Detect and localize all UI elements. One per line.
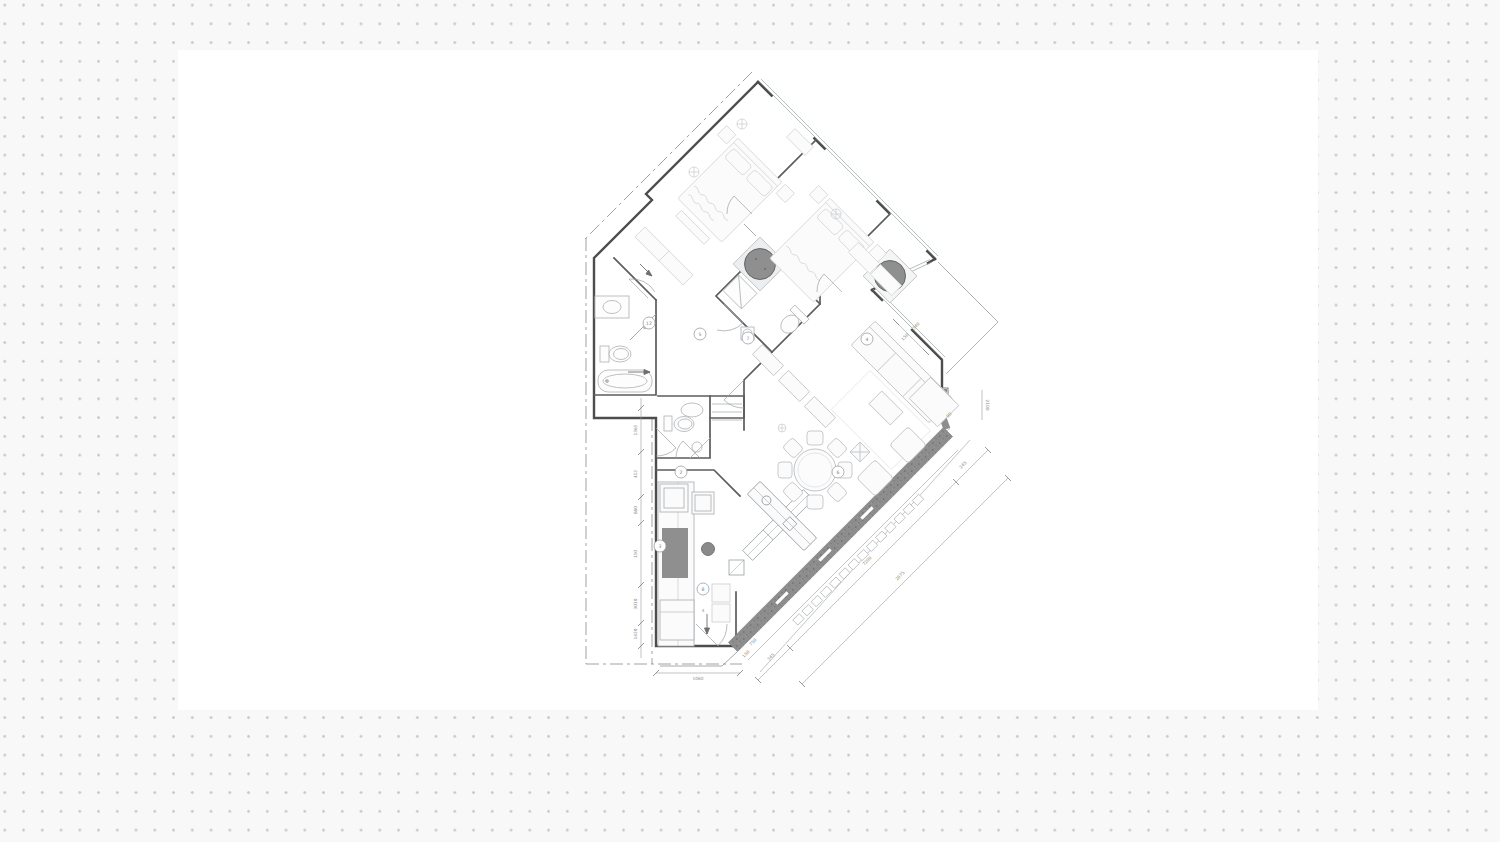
dim-label: 412	[633, 470, 638, 478]
counter-dark-top	[662, 528, 688, 578]
section-marker-label: 4	[702, 608, 705, 613]
bedroom-1-bed	[656, 126, 795, 265]
living-furniture	[747, 321, 958, 551]
tag-number: 6	[837, 470, 840, 475]
tag-number: 12	[646, 321, 652, 326]
base-cabinet	[712, 604, 730, 622]
window-living	[880, 298, 914, 332]
tag-number: 8	[702, 587, 705, 592]
dim-label: 3010	[633, 598, 638, 609]
tag-symbol: 4	[861, 333, 873, 345]
terrace-outline	[938, 262, 998, 374]
dining-chair	[807, 495, 823, 509]
tag-number: 5	[699, 332, 702, 337]
wardrobe	[659, 251, 693, 285]
nightstand	[717, 126, 735, 144]
tag-number: 7	[747, 336, 750, 341]
dim-label: 345	[766, 652, 776, 662]
dining-chair	[807, 431, 823, 445]
section-marker: 4	[702, 608, 705, 613]
dim-label: 2100	[985, 400, 990, 411]
dining-table-circle	[794, 449, 836, 491]
sideboard	[804, 396, 835, 427]
sink	[603, 301, 621, 314]
door-entry	[656, 428, 676, 456]
dim-label: 150	[741, 649, 751, 659]
tag-number: 3	[659, 544, 662, 549]
window-bedroom2	[823, 147, 880, 204]
sink	[681, 403, 703, 417]
tag-number: 4	[866, 337, 869, 342]
nightstand	[776, 184, 794, 202]
tag-symbol: 3	[654, 540, 666, 552]
tag-symbol: 6	[832, 466, 844, 478]
tag-symbol: 7	[742, 332, 754, 344]
base-cabinet	[712, 584, 730, 602]
door-jamb-square	[729, 560, 744, 575]
dining-chair	[778, 462, 792, 478]
door-powder-room	[676, 441, 700, 458]
kitchen-sink	[702, 543, 715, 556]
wall-storage	[710, 396, 744, 430]
sideboard	[778, 370, 809, 401]
powder-room	[664, 403, 710, 458]
door-kitchen	[696, 624, 727, 646]
bedroom-2-bed	[758, 186, 887, 315]
dim-label: 1365	[633, 424, 638, 435]
dim-label: 150	[633, 550, 638, 558]
dim-label-bottom: 1060	[693, 676, 704, 681]
dim-label: 340	[911, 321, 921, 331]
floor-plan-drawing: 1365 412 860 150 3010 1420 1060 345 7200…	[0, 0, 1500, 842]
tag-symbol: 12	[643, 317, 655, 329]
tag-symbol: 2	[675, 466, 687, 478]
door-ensuite	[717, 304, 743, 331]
nightstand	[809, 186, 827, 204]
dim-label: 860	[633, 506, 638, 514]
tag-number: 2	[680, 470, 683, 475]
dim-label: 2875	[894, 570, 905, 581]
dim-label: 150	[900, 332, 910, 342]
tag-symbol: 5	[694, 328, 706, 340]
window-bedroom2-b	[887, 211, 929, 253]
coffee-table	[869, 391, 903, 425]
column-1-circle	[745, 249, 776, 280]
toilet-tank	[664, 416, 672, 431]
design-canvas-background: 1365 412 860 150 3010 1420 1060 345 7200…	[0, 0, 1500, 842]
dim-label: 245	[958, 460, 968, 470]
fridge	[660, 600, 694, 640]
dim-label: 1420	[633, 628, 638, 639]
master-bathroom	[595, 296, 656, 392]
kitchen	[658, 482, 730, 646]
toilet-tank	[600, 346, 609, 362]
tag-symbol: 8	[697, 583, 709, 595]
